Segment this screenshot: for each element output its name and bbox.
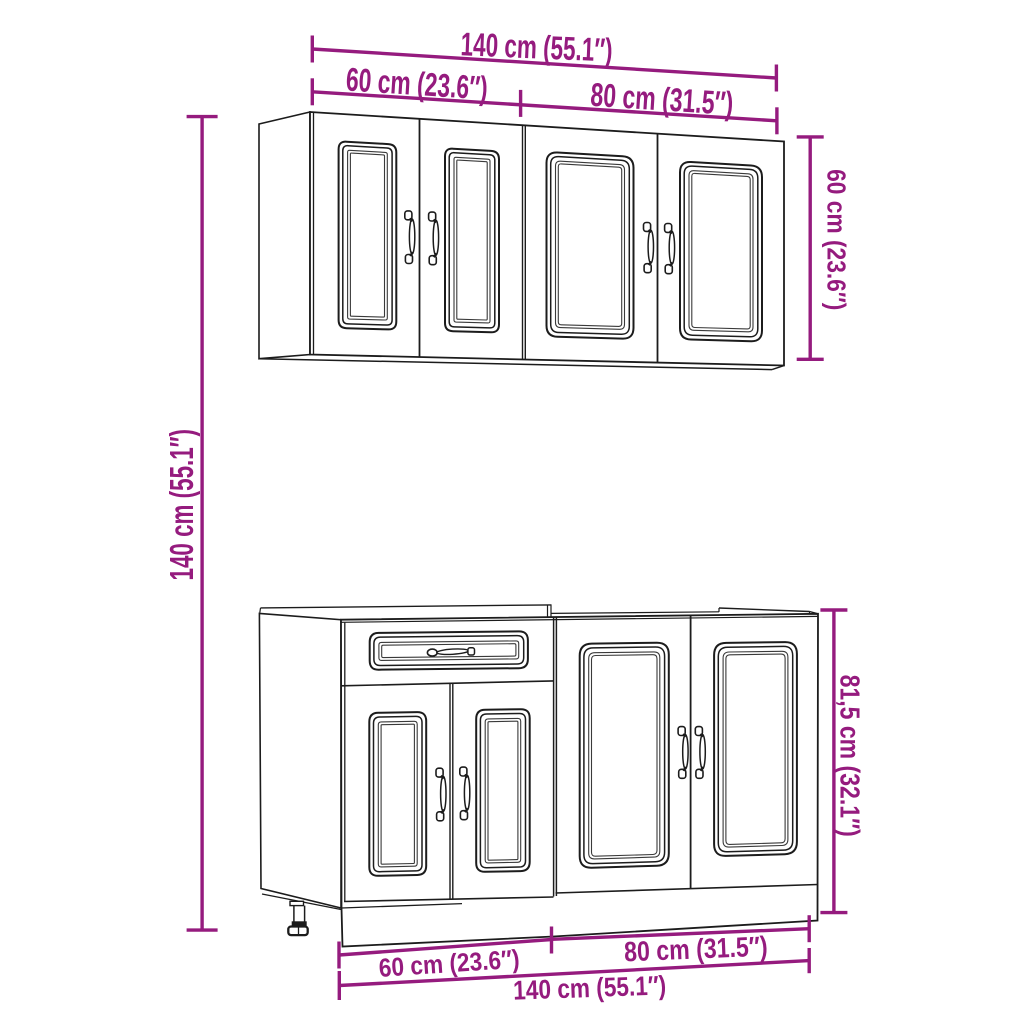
svg-text:60 cm (23.6″): 60 cm (23.6″) [822, 169, 850, 310]
svg-text:140 cm (55.1″): 140 cm (55.1″) [460, 25, 613, 68]
svg-text:81,5 cm (32.1″): 81,5 cm (32.1″) [835, 675, 866, 837]
svg-text:80 cm (31.5″): 80 cm (31.5″) [623, 931, 768, 968]
svg-text:140 cm (55.1″): 140 cm (55.1″) [513, 970, 667, 1005]
svg-text:140 cm (55.1″): 140 cm (55.1″) [163, 429, 200, 580]
